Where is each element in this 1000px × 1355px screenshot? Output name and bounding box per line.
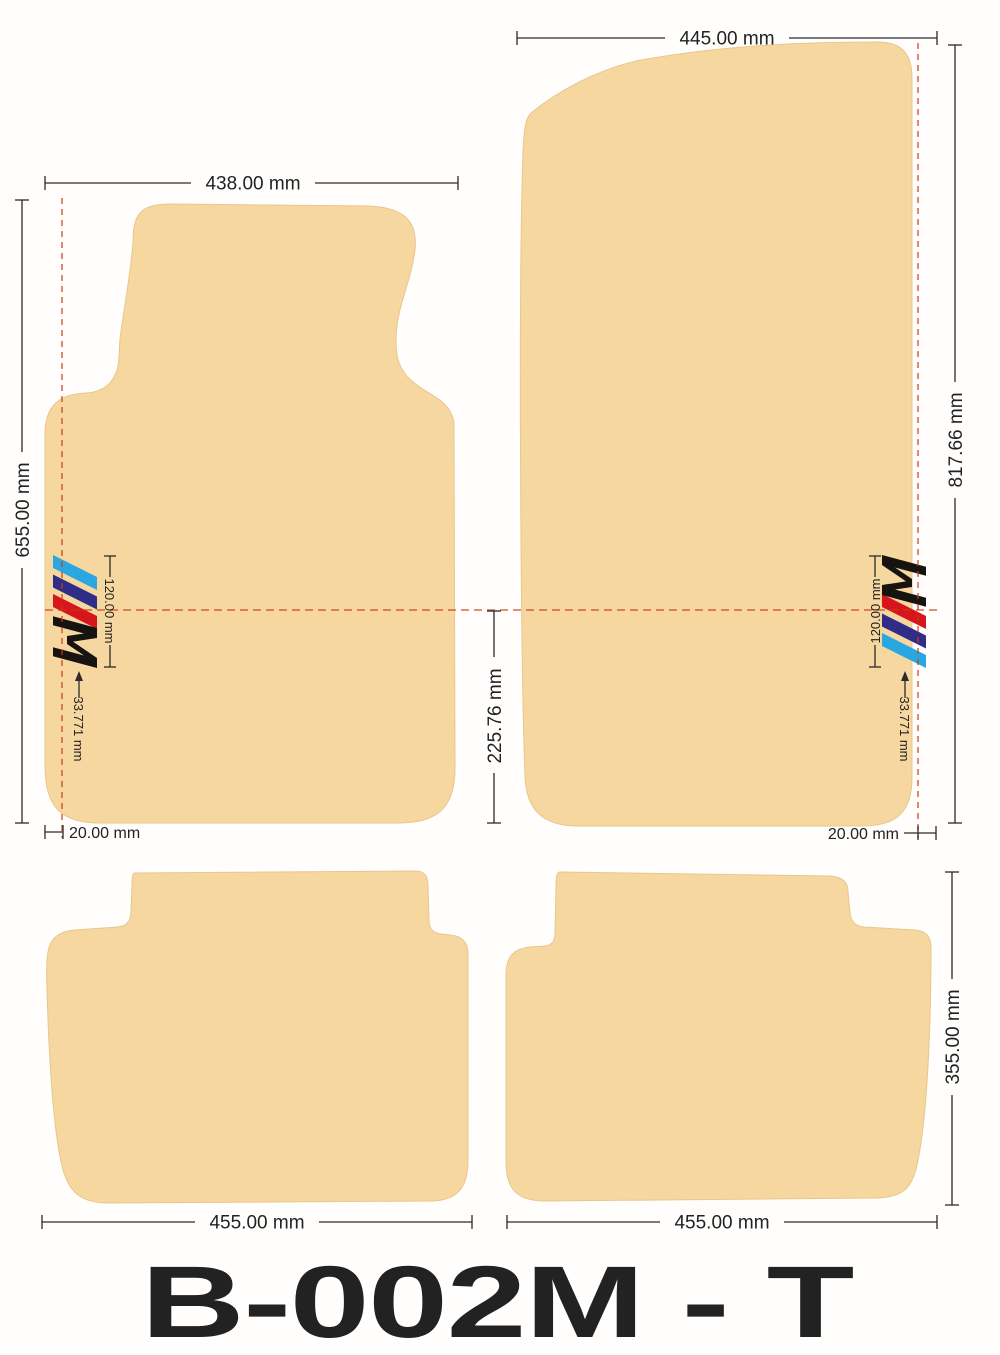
mat-front-right bbox=[520, 42, 912, 826]
dim-left-edge-offset: 20.00 mm bbox=[45, 825, 140, 842]
dim-rear-left-width: 455.00 mm bbox=[42, 1213, 472, 1234]
dim-label: 33.771 mm bbox=[71, 696, 86, 761]
dim-label: 655.00 mm bbox=[13, 462, 34, 557]
model-code-title: B-002M - T bbox=[141, 1245, 854, 1355]
dim-front-left-height: 655.00 mm bbox=[13, 200, 34, 823]
dim-label: 355.00 mm bbox=[943, 989, 964, 1084]
dim-label: 445.00 mm bbox=[679, 29, 774, 50]
mat-rear-right bbox=[506, 872, 931, 1201]
mat-rear-left bbox=[47, 871, 468, 1203]
dim-label: 120.00 mm bbox=[102, 578, 117, 643]
dim-label: 20.00 mm bbox=[69, 825, 140, 842]
dim-label: 455.00 mm bbox=[209, 1213, 304, 1234]
dim-label: 817.66 mm bbox=[946, 392, 967, 487]
dim-label: 20.00 mm bbox=[828, 826, 899, 843]
drawing-canvas: 438.00 mm 445.00 mm 655.00 mm 817.66 mm bbox=[0, 0, 1000, 1355]
dim-front-right-height: 817.66 mm bbox=[946, 45, 967, 823]
floor-mat-dimension-drawing: 438.00 mm 445.00 mm 655.00 mm 817.66 mm bbox=[0, 0, 1000, 1355]
dim-label: 225.76 mm bbox=[485, 668, 506, 763]
dim-label: 455.00 mm bbox=[674, 1213, 769, 1234]
dim-label: 33.771 mm bbox=[897, 696, 912, 761]
dim-label: 438.00 mm bbox=[205, 174, 300, 195]
dim-rear-height: 355.00 mm bbox=[943, 872, 964, 1205]
mat-shapes bbox=[45, 42, 931, 1203]
dim-rear-right-width: 455.00 mm bbox=[507, 1213, 937, 1234]
dim-front-left-width: 438.00 mm bbox=[45, 174, 458, 195]
dim-center-gap: 225.76 mm bbox=[485, 611, 506, 823]
mat-front-left bbox=[45, 204, 455, 823]
dim-label: 120.00 mm bbox=[868, 578, 883, 643]
dim-right-edge-offset: 20.00 mm bbox=[828, 826, 936, 843]
